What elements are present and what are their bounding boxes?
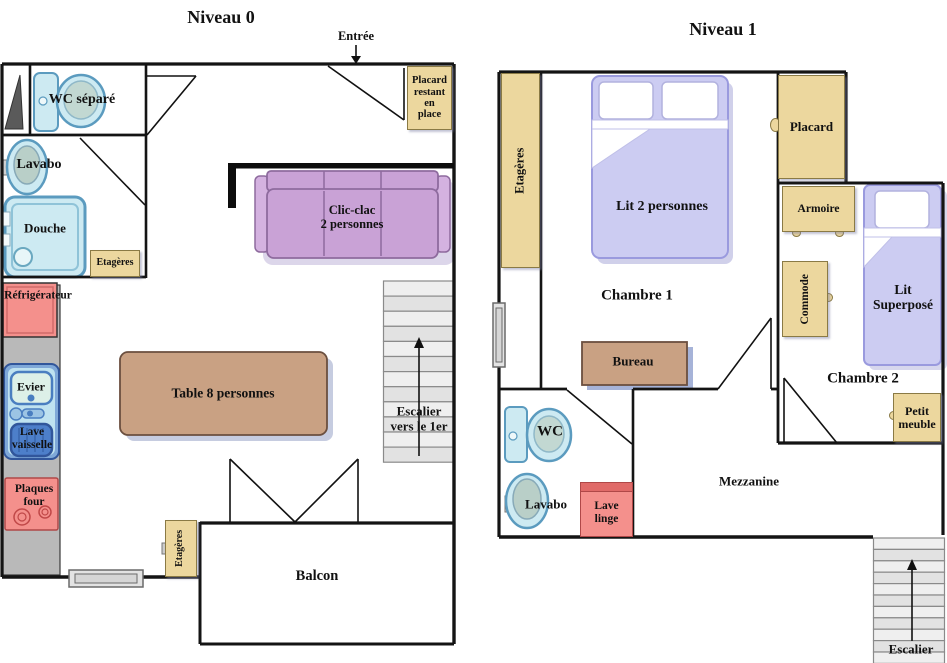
label-bureau: Bureau: [613, 355, 654, 370]
lave-linge-inner: Lave linge: [581, 483, 632, 536]
stair-step: [384, 296, 454, 311]
stair-step: [384, 311, 454, 326]
lave-linge-controls: [581, 483, 632, 492]
room-label-chambre2: Chambre 2: [827, 371, 899, 388]
stairs-label-niveau1: Escalier: [889, 643, 934, 658]
petit-meuble-box: Petit meuble: [893, 393, 941, 442]
label-evier: Evier: [17, 380, 45, 393]
double-bed-icon: [592, 76, 733, 264]
floorplan-canvas: Niveau 0 Niveau 1 Entrée Escalier vers l…: [0, 0, 947, 663]
stair-step: [874, 538, 945, 549]
etageres-balcon-box: Etagères: [165, 520, 197, 577]
shower-icon: [3, 197, 85, 277]
lave-linge-box: Lave linge: [580, 482, 633, 537]
window-niveau1: [493, 303, 505, 367]
niveau0-title: Niveau 0: [187, 7, 255, 27]
lave-linge-label: Lave linge: [594, 500, 618, 525]
label-table: Table 8 personnes: [171, 385, 274, 400]
label-douche: Douche: [24, 222, 66, 237]
armoire-box: Armoire: [782, 186, 855, 232]
stair-step: [874, 584, 945, 595]
dark-triangle-fixture: [5, 75, 23, 129]
stairs-label-niveau0: Escalier vers le 1er: [390, 404, 447, 433]
single-bed-icon: [864, 185, 947, 370]
stair-step: [384, 281, 454, 296]
entrance-arrow: [351, 45, 361, 64]
label-wc-separe: WC séparé: [49, 92, 116, 108]
etageres-balcon-label: Etagères: [176, 530, 187, 567]
label-lavabo-niveau1: Lavabo: [525, 498, 567, 513]
label-lavabo-niveau0: Lavabo: [16, 157, 61, 173]
commode-box: Commode: [782, 261, 828, 337]
label-lit-2-personnes: Lit 2 personnes: [616, 199, 708, 215]
label-lave-vaisselle: Lave vaisselle: [12, 426, 52, 452]
label-refrigerateur: Réfrigérateur: [4, 290, 72, 303]
room-label-balcon: Balcon: [296, 568, 339, 584]
placard-entree-box: Placard restant en place: [407, 66, 452, 130]
label-clic-clac: Clic-clac 2 personnes: [321, 203, 384, 231]
room-label-chambre1: Chambre 1: [601, 288, 673, 305]
stair-step: [874, 595, 945, 606]
label-lit-superpose: Lit Superposé: [873, 282, 933, 312]
niveau1-title: Niveau 1: [689, 19, 757, 39]
stair-step: [874, 629, 945, 640]
stair-step: [874, 618, 945, 629]
label-wc-niveau1: WC: [537, 424, 563, 441]
etageres-niveau1-box: Etagères: [501, 73, 540, 268]
stair-step: [874, 572, 945, 583]
etageres-niveau1-label: Etagères: [514, 147, 528, 193]
entrance-label: Entrée: [338, 29, 374, 43]
label-plaques-four: Plaques four: [15, 483, 53, 509]
stair-step: [874, 549, 945, 560]
window-niveau0: [69, 543, 169, 587]
stair-step: [874, 606, 945, 617]
placard-niveau1-box: Placard: [778, 75, 845, 179]
etageres-sdb-box: Etagères: [90, 250, 140, 277]
commode-label: Commode: [799, 274, 811, 324]
room-label-mezzanine: Mezzanine: [719, 475, 779, 490]
